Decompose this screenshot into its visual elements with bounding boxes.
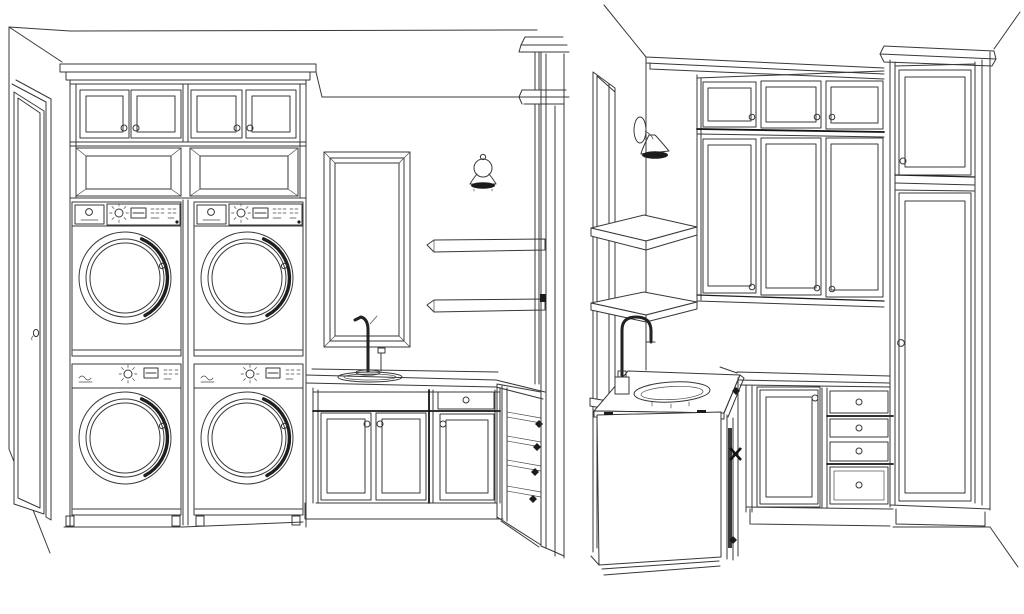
- shelf-bracket-shadow: [540, 294, 546, 302]
- upper-cabinets: [697, 71, 884, 307]
- design-rendering: [0, 0, 1024, 614]
- upper-cabinet-door: [761, 138, 821, 295]
- cabinet-knob: [829, 114, 835, 120]
- cabinet-knob: [829, 286, 835, 292]
- drawer-knob: [856, 399, 862, 405]
- wall-sconce: [470, 154, 496, 191]
- upper-cabinet-door: [191, 90, 242, 138]
- line-drawing: [0, 0, 1024, 614]
- cabinet-front-panel: [597, 412, 721, 565]
- floating-shelves: [427, 239, 545, 312]
- sconce-rim: [471, 182, 495, 188]
- floating-shelves: [591, 215, 697, 322]
- upper-cabinet-door: [246, 90, 296, 138]
- faucet: [355, 317, 368, 371]
- base-door: [440, 414, 494, 500]
- tall-cabinet-side: [519, 37, 569, 548]
- cabinet-knob: [133, 125, 139, 131]
- drawer: [830, 391, 888, 413]
- cabinet-knob: [749, 284, 755, 290]
- drawer: [830, 442, 888, 461]
- upper-cabinet-door: [703, 82, 756, 127]
- soap-pump: [378, 348, 385, 371]
- perspective-view: [590, 5, 1020, 575]
- sink-and-faucet: [338, 316, 402, 382]
- toe-kick-and-floor: [890, 505, 1018, 567]
- drawer-knob: [856, 482, 862, 488]
- pantry-tall-door: [899, 193, 971, 501]
- base-door: [321, 413, 371, 500]
- crown-molding: [646, 46, 996, 79]
- upper-cabinet-door: [703, 139, 756, 293]
- upper-cabinet-door: [131, 90, 181, 138]
- drawer-knob: [463, 397, 469, 403]
- countertop-right: [720, 367, 890, 387]
- upper-cabinet-door: [826, 81, 883, 129]
- cabinet-crown-molding: [60, 64, 316, 80]
- drawer: [830, 419, 888, 437]
- drawer-knob: [856, 425, 862, 431]
- shadow-strip: [728, 428, 732, 548]
- stacked-laundry-left: [72, 202, 181, 515]
- hinge-mark: [604, 412, 613, 415]
- drawer: [830, 467, 888, 504]
- upper-cabinet-door: [826, 138, 883, 297]
- faucet-base: [615, 377, 629, 394]
- stack-divider: [183, 200, 188, 525]
- dark-knob: [535, 420, 543, 428]
- base-door: [376, 413, 426, 500]
- dark-knob: [533, 443, 541, 451]
- toe-kick: [305, 503, 503, 519]
- countertop: [306, 369, 545, 399]
- cabinet-knob: [121, 125, 127, 131]
- sconce-rim: [642, 151, 668, 159]
- corner-cabinet: [497, 384, 543, 547]
- open-cubbies: [76, 148, 298, 196]
- shelf: [427, 299, 545, 312]
- shelf: [427, 239, 545, 252]
- base-cabinets: [305, 388, 503, 519]
- drawer-knob: [856, 448, 862, 454]
- upper-cabinet-door: [80, 90, 129, 138]
- tall-pantry-cabinet: [890, 52, 1018, 567]
- upper-cabinet-door: [761, 81, 821, 128]
- cabinet-knob: [749, 114, 755, 120]
- entry-door: [12, 80, 51, 520]
- mirror: [324, 152, 410, 347]
- pantry-upper-door: [899, 70, 971, 175]
- toe-kick: [746, 507, 893, 526]
- stacked-laundry-right: [194, 202, 303, 515]
- hinge-mark: [697, 410, 706, 413]
- elevation-view: [9, 27, 569, 558]
- base-door: [760, 390, 818, 504]
- cabinet-knob: [812, 395, 818, 401]
- cabinet-knob: [814, 114, 820, 120]
- base-cabinets: [746, 385, 893, 526]
- cabinet-knob: [440, 421, 446, 427]
- sconce-backplate: [634, 117, 646, 143]
- drawer: [438, 392, 494, 409]
- wall-sconce: [634, 117, 669, 159]
- sink-cabinet: [591, 317, 744, 575]
- cabinet-knob: [234, 125, 240, 131]
